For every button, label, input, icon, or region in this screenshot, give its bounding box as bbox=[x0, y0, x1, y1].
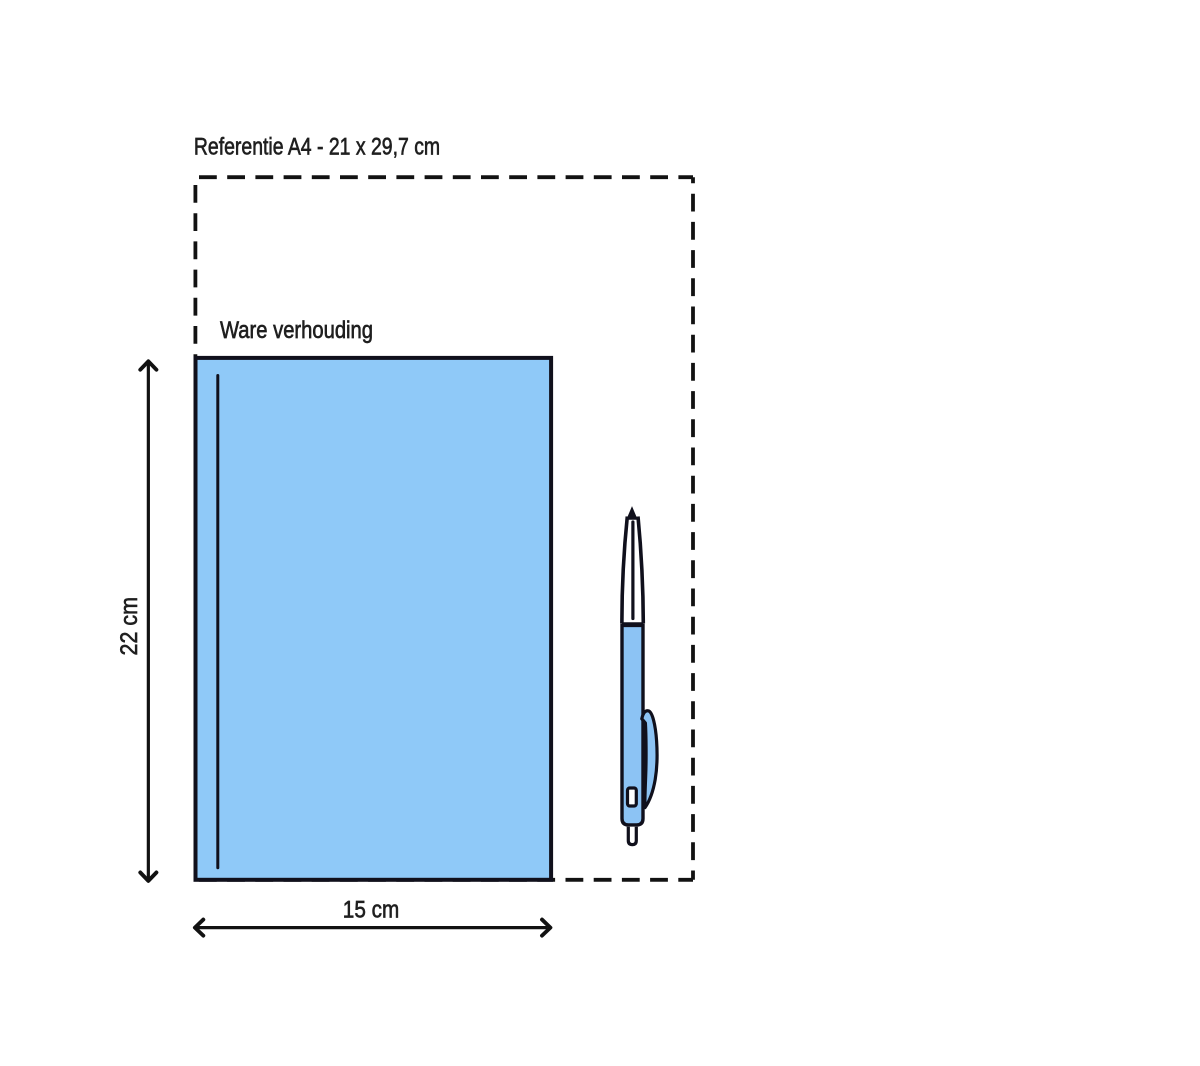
svg-text:Referentie A4 - 21 x 29,7 cm: Referentie A4 - 21 x 29,7 cm bbox=[194, 133, 440, 160]
svg-text:15 cm: 15 cm bbox=[343, 897, 399, 924]
svg-text:22 cm: 22 cm bbox=[116, 597, 143, 656]
svg-text:Ware verhouding: Ware verhouding bbox=[220, 317, 373, 344]
